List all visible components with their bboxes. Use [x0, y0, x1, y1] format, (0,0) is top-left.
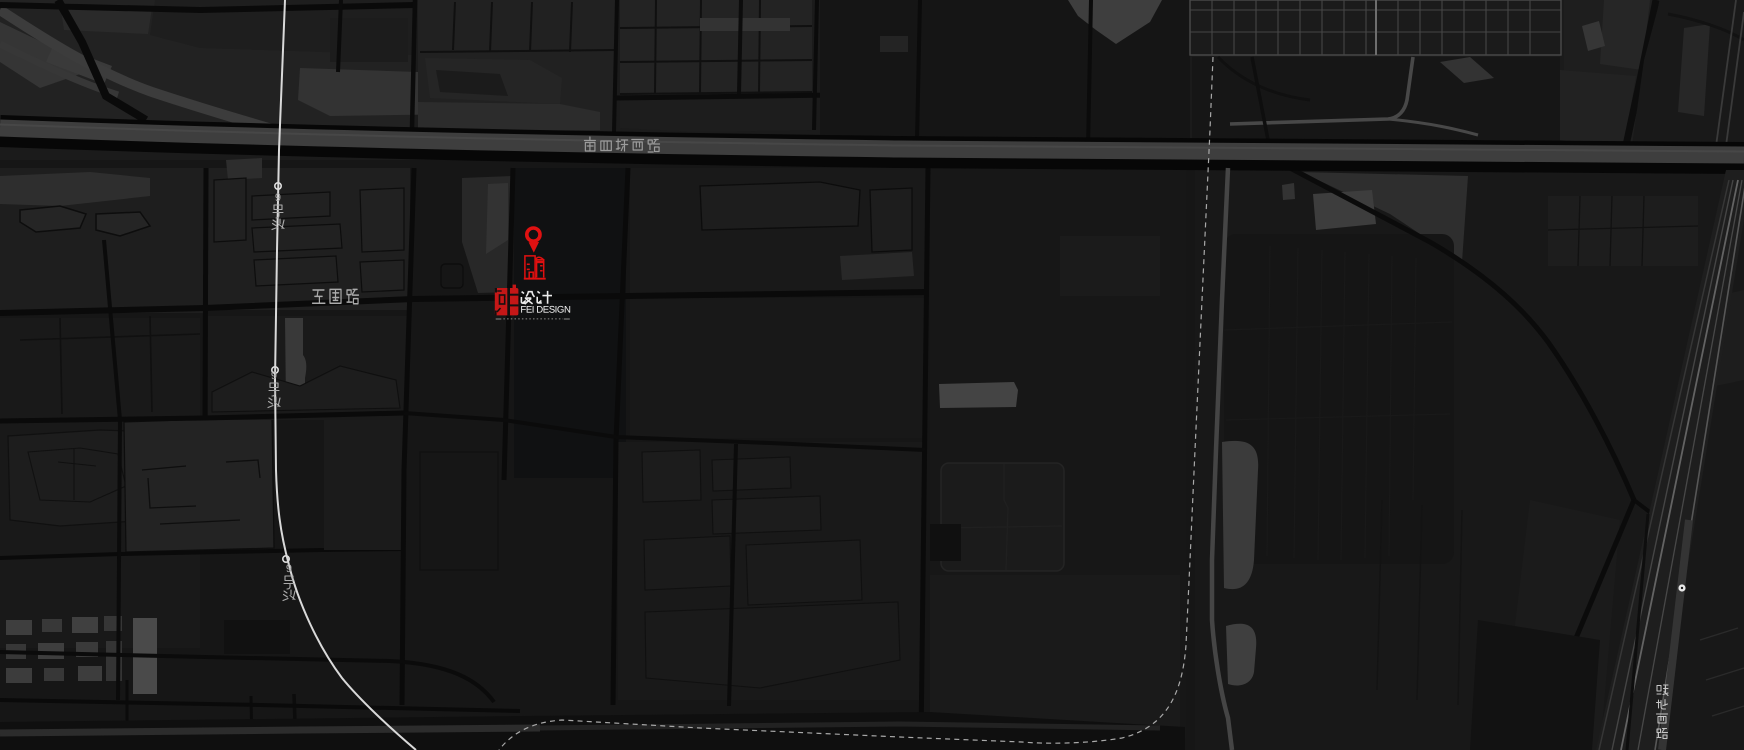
svg-text:FEI DESIGN: FEI DESIGN	[520, 305, 571, 316]
svg-text:9: 9	[275, 192, 281, 204]
svg-text:9: 9	[271, 370, 277, 382]
svg-text:9: 9	[286, 563, 292, 575]
